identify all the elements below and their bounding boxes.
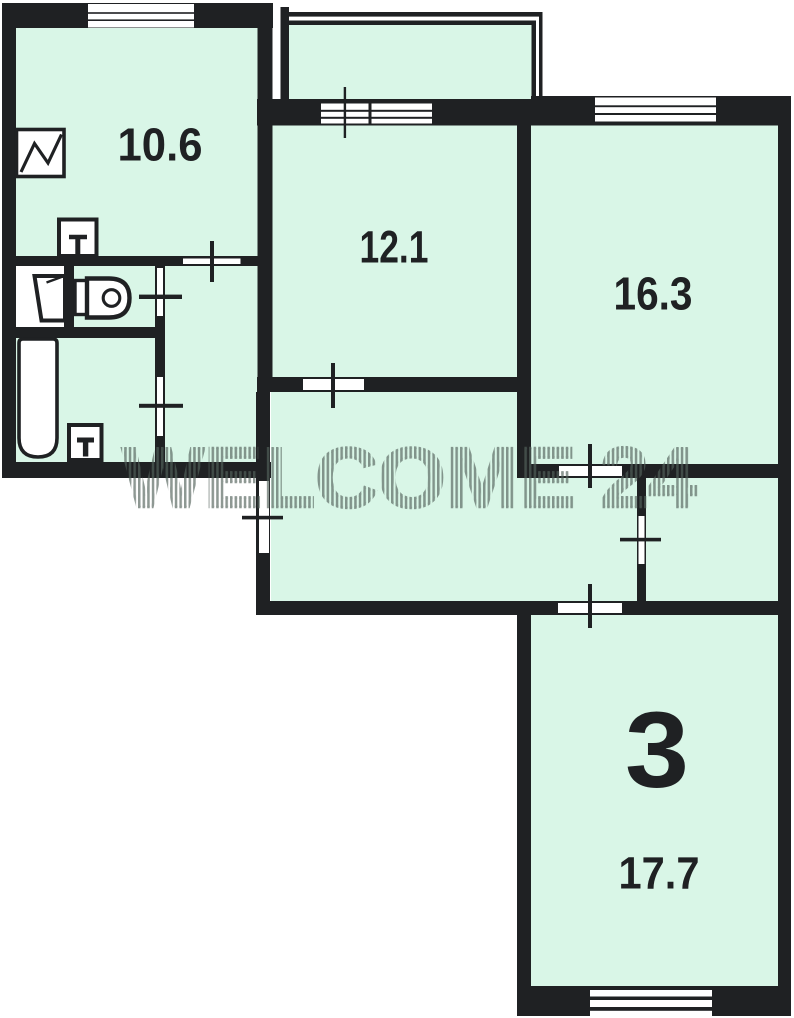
svg-text:10.6: 10.6 <box>118 119 203 171</box>
svg-text:WELCOME 24: WELCOME 24 <box>122 431 697 526</box>
svg-text:17.7: 17.7 <box>619 848 700 899</box>
svg-text:12.1: 12.1 <box>360 222 429 273</box>
svg-text:16.3: 16.3 <box>614 268 693 320</box>
svg-text:3: 3 <box>625 689 689 810</box>
